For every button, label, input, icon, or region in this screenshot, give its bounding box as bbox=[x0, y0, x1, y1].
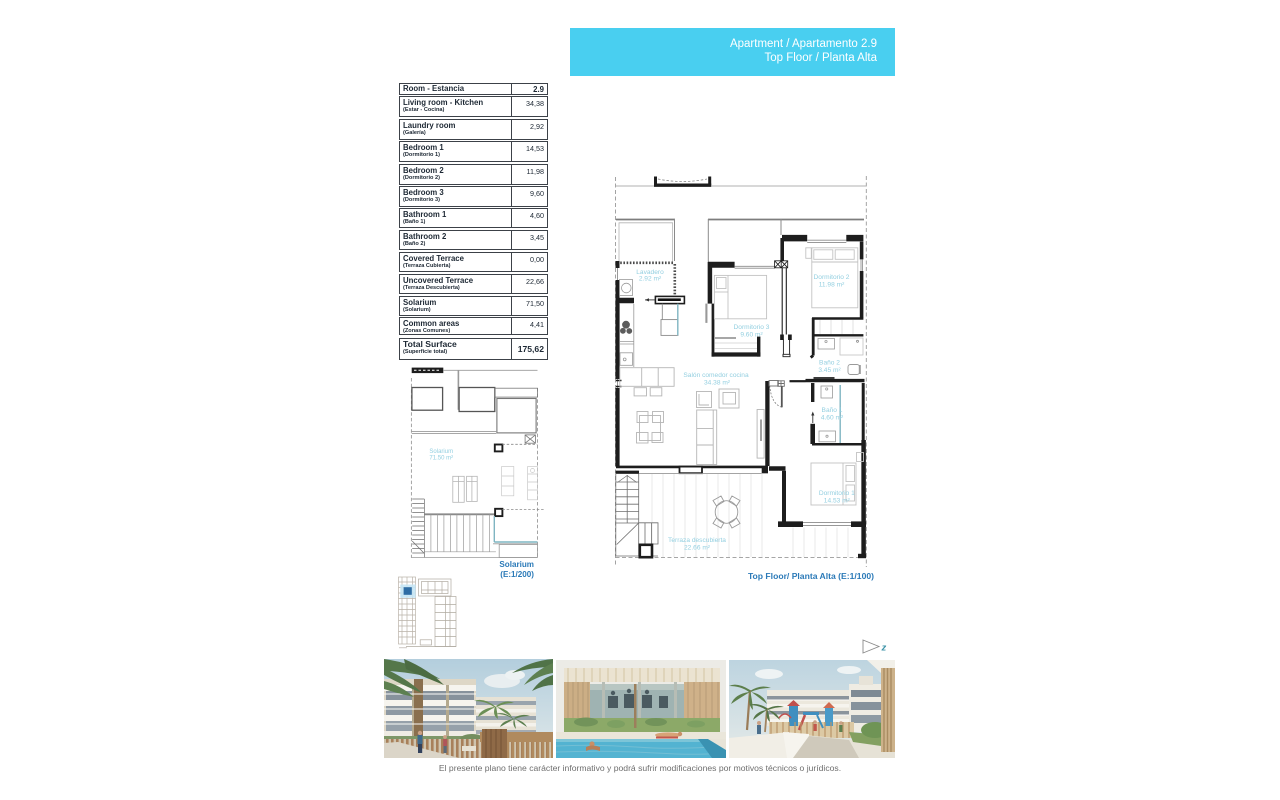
svg-text:4.60 m²: 4.60 m² bbox=[821, 415, 844, 422]
svg-text:22.66 m²: 22.66 m² bbox=[684, 545, 711, 552]
svg-text:Dormitorio 1: Dormitorio 1 bbox=[819, 490, 855, 497]
svg-text:Salón comedor cocina: Salón comedor cocina bbox=[683, 372, 749, 379]
svg-text:Baño 1: Baño 1 bbox=[822, 407, 843, 414]
svg-text:Terraza descubierta: Terraza descubierta bbox=[668, 537, 726, 544]
svg-text:2.92 m²: 2.92 m² bbox=[639, 276, 662, 283]
svg-text:11.98 m²: 11.98 m² bbox=[819, 282, 845, 289]
svg-text:Baño 2: Baño 2 bbox=[819, 360, 840, 367]
svg-text:9.60 m²: 9.60 m² bbox=[740, 332, 763, 339]
svg-text:Solarium: Solarium bbox=[429, 449, 453, 455]
svg-text:3.45 m²: 3.45 m² bbox=[818, 367, 841, 374]
svg-text:Dormitorio 3: Dormitorio 3 bbox=[734, 324, 770, 331]
svg-text:14.53 m²: 14.53 m² bbox=[824, 498, 851, 505]
svg-text:34.38 m²: 34.38 m² bbox=[704, 380, 731, 387]
svg-text:Dormitorio 2: Dormitorio 2 bbox=[814, 274, 850, 281]
svg-text:z: z bbox=[881, 643, 887, 654]
svg-text:71.50 m²: 71.50 m² bbox=[429, 455, 453, 461]
